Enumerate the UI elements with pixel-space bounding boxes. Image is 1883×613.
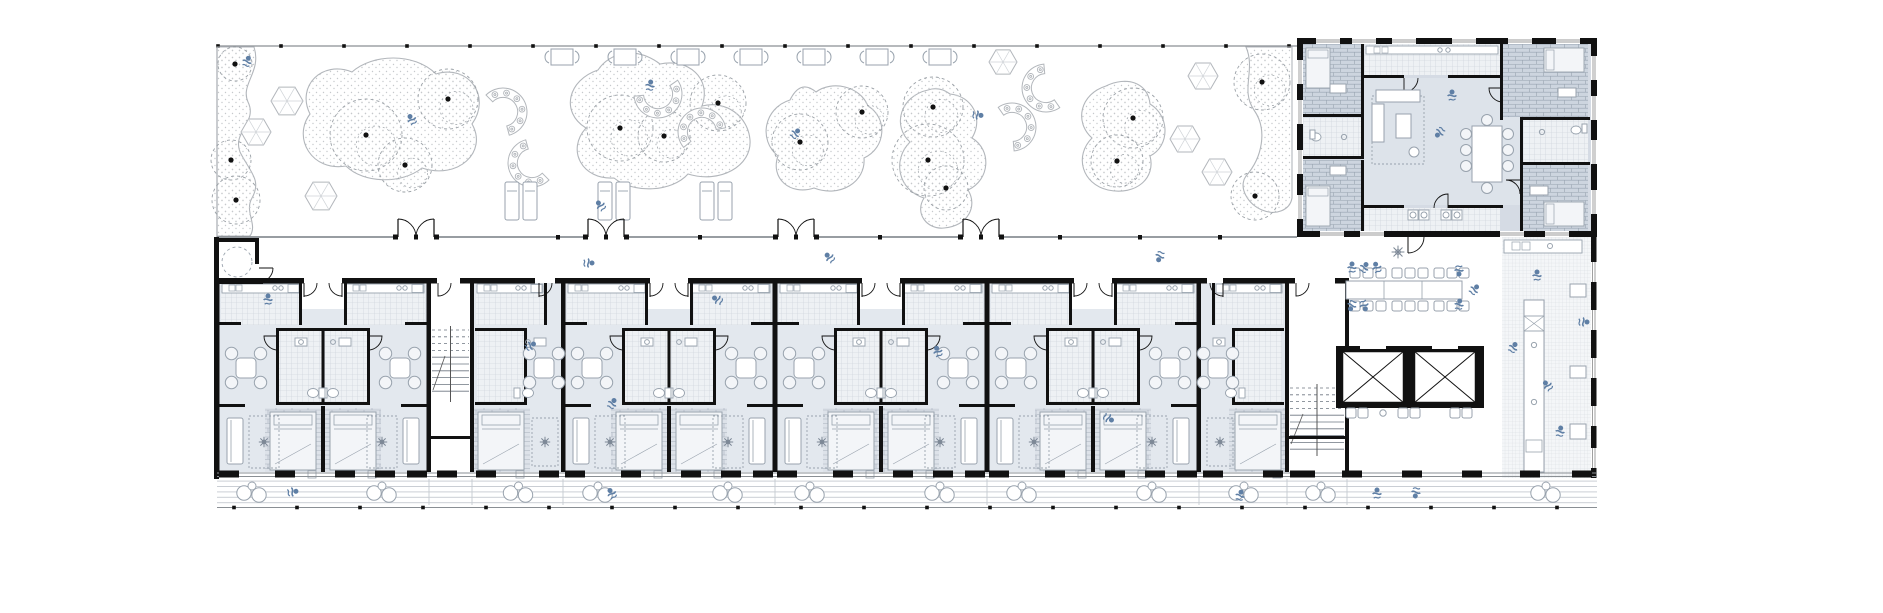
sofa — [1173, 418, 1189, 464]
amenity-block — [1297, 38, 1597, 237]
bed — [1544, 202, 1584, 226]
left-exterior-wall — [214, 237, 219, 479]
ground-tick — [421, 506, 425, 510]
column-tick — [1098, 44, 1102, 48]
kitchen — [1115, 283, 1195, 325]
ground-tick — [1051, 506, 1055, 510]
ground-tick — [232, 506, 236, 510]
ground-tick — [1429, 506, 1433, 510]
bed — [1544, 48, 1584, 72]
bed — [1306, 48, 1330, 88]
kitchen — [691, 283, 771, 325]
ground-tick — [799, 506, 803, 510]
floor-plan-canvas — [0, 0, 1883, 613]
unit-pair — [215, 278, 432, 478]
ground-tick — [610, 506, 614, 510]
column-tick — [846, 44, 850, 48]
studio-unit — [1197, 278, 1289, 478]
column-tick — [1035, 44, 1039, 48]
column-tick — [720, 44, 724, 48]
column-tick — [279, 44, 283, 48]
column-tick — [657, 44, 661, 48]
apartment-units — [215, 278, 1350, 478]
ground-tick — [358, 506, 362, 510]
column-tick — [1161, 44, 1165, 48]
column-tick — [972, 44, 976, 48]
unit-pair — [985, 278, 1202, 478]
tree — [1091, 135, 1143, 187]
tree — [418, 69, 478, 129]
tree — [836, 86, 888, 138]
ground-tick — [484, 506, 488, 510]
kitchen — [1215, 283, 1283, 325]
tree — [772, 114, 828, 170]
tree — [1231, 172, 1279, 220]
ground-tick — [547, 506, 551, 510]
floor-plan-page — [0, 0, 1883, 613]
bathroom-core — [1034, 328, 1152, 405]
column-tick — [342, 44, 346, 48]
sofa — [573, 418, 589, 464]
kitchen — [567, 283, 647, 325]
ground-tick — [1492, 506, 1496, 510]
ground-tick — [925, 506, 929, 510]
sofa — [403, 418, 419, 464]
tree — [218, 47, 252, 81]
sofa — [227, 418, 243, 464]
bed — [1306, 186, 1330, 226]
column-tick — [405, 44, 409, 48]
unit-pair — [773, 278, 990, 478]
kitchen — [476, 283, 544, 325]
kitchen — [903, 283, 983, 325]
ground-tick — [1366, 506, 1370, 510]
ground-tick — [1555, 506, 1559, 510]
stair-core — [427, 278, 474, 472]
ground-tick — [862, 506, 866, 510]
sofa — [785, 418, 801, 464]
tree — [211, 140, 251, 180]
deck-terrace — [217, 479, 1597, 509]
sofa — [749, 418, 765, 464]
ground-tick — [295, 506, 299, 510]
kitchen — [991, 283, 1071, 325]
bathroom-core — [822, 328, 940, 405]
cafe-kitchen-area — [1502, 237, 1597, 478]
island-counter — [1524, 300, 1544, 472]
studio-unit — [470, 278, 565, 478]
ground-tick — [736, 506, 740, 510]
column-tick — [531, 44, 535, 48]
double-bed — [1235, 412, 1281, 478]
column-tick — [1224, 44, 1228, 48]
ground-tick — [988, 506, 992, 510]
ground-tick — [1177, 506, 1181, 510]
kitchen — [221, 283, 301, 325]
sofa — [997, 418, 1013, 464]
column-tick — [783, 44, 787, 48]
ground-tick — [1303, 506, 1307, 510]
ground-tick — [1114, 506, 1118, 510]
unit-pair — [561, 278, 778, 478]
tree — [378, 138, 432, 192]
kitchen — [779, 283, 859, 325]
kitchen — [345, 283, 425, 325]
tree — [924, 166, 968, 210]
column-tick — [594, 44, 598, 48]
double-bed — [478, 412, 524, 478]
column-tick — [468, 44, 472, 48]
column-tick — [909, 44, 913, 48]
bathroom-core — [610, 328, 728, 405]
bathroom-core — [264, 328, 382, 405]
tree — [1234, 54, 1290, 110]
sofa — [961, 418, 977, 464]
ground-tick — [1240, 506, 1244, 510]
ground-tick — [673, 506, 677, 510]
tree — [212, 176, 260, 224]
